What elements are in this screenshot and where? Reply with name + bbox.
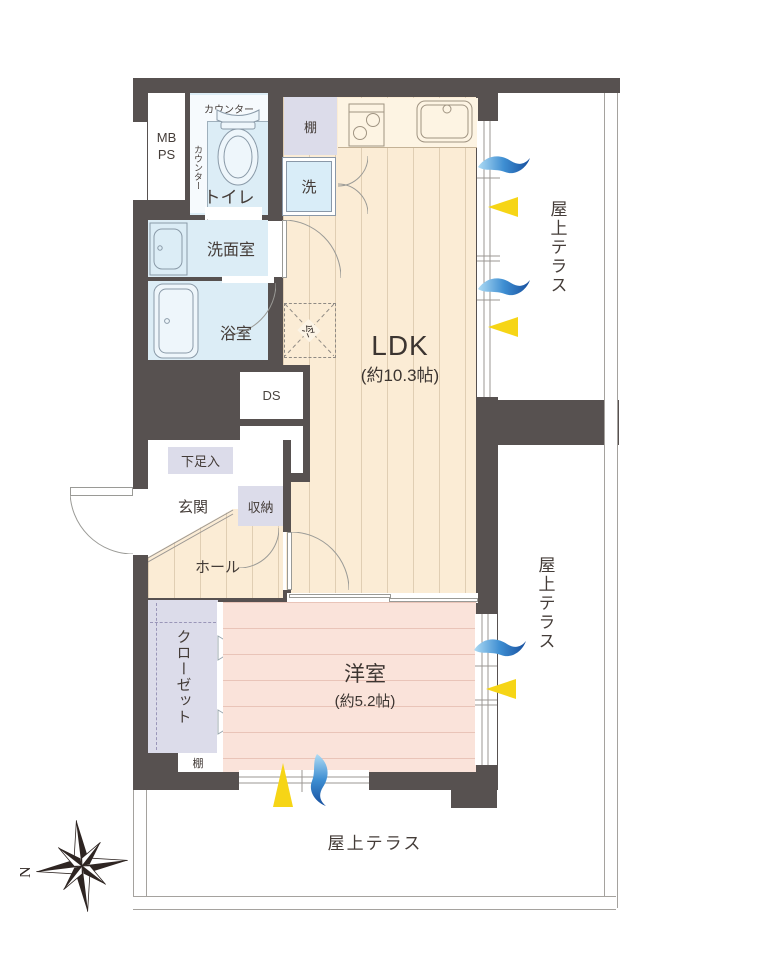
daylight-icon	[271, 762, 295, 808]
wind-icon	[478, 274, 530, 300]
front-door-opening	[131, 489, 148, 555]
hall-door-arc	[291, 532, 349, 590]
wall-bottom-block	[451, 790, 497, 808]
refrigerator-box: 冷	[284, 303, 336, 358]
sink-icon	[416, 100, 474, 144]
floor-plan: 屋上テラス 屋上テラス 屋上テラス MB PS カウンター カウンター トイレ …	[0, 0, 759, 960]
front-door-arc	[70, 491, 133, 554]
ds-1-label: DS	[262, 388, 280, 403]
ldk-size-label: (約10.3帖)	[340, 362, 460, 384]
toilet-icon	[210, 107, 266, 191]
compass-icon: N	[20, 812, 132, 924]
daylight-icon	[487, 195, 519, 219]
shelf-top-label: 棚	[304, 117, 317, 136]
shoe-cabinet-box: 下足入	[168, 447, 233, 474]
closet-label: クローゼット	[173, 629, 194, 725]
meter-box-opening	[133, 122, 147, 200]
washroom-door-gap	[268, 221, 283, 277]
daylight-icon	[485, 677, 517, 701]
terrace-right-label: 屋上テラス	[532, 548, 558, 658]
mb-ps-label: MB PS	[154, 130, 180, 163]
wind-icon	[478, 152, 530, 178]
washroom-door-arc	[283, 220, 341, 278]
wall-hall-ldk-upper	[283, 440, 291, 532]
wall-terrace-divider	[455, 400, 619, 445]
western-room-size-label: (約5.2帖)	[312, 690, 418, 710]
compass-north-label: N	[20, 866, 34, 878]
bathroom-door-gap	[222, 276, 274, 283]
laundry-inner: 洗	[286, 161, 332, 212]
toilet-label: トイレ	[190, 184, 268, 206]
wind-icon	[474, 635, 526, 661]
closet-dash-vertical	[156, 603, 157, 750]
refrigerator-label-wrap: 冷	[285, 304, 334, 356]
laundry-box: 洗	[282, 157, 336, 216]
bathroom-label: 浴室	[208, 322, 264, 342]
wind-icon	[306, 754, 332, 806]
closet-hanger-pipe	[150, 622, 216, 623]
bathtub-icon	[153, 283, 199, 359]
terrace-parapet-right	[604, 93, 618, 908]
stove-icon	[348, 103, 386, 147]
refrigerator-label: 冷	[298, 318, 321, 341]
window-bottom	[239, 770, 369, 792]
hall-label: ホール	[185, 556, 250, 576]
laundry-label: 洗	[301, 176, 316, 197]
shelf-top-box: 棚	[284, 97, 337, 155]
ldk-label: LDK	[345, 330, 455, 362]
storage-box: 収納	[238, 486, 283, 526]
closet-shelf-box: 棚	[178, 753, 218, 772]
terrace-parapet-bottom	[133, 896, 616, 910]
washroom-label: 洗面室	[195, 238, 267, 258]
pantry-door-arcs	[338, 156, 368, 214]
terrace-bottom-label: 屋上テラス	[320, 830, 430, 852]
washbasin-icon	[149, 222, 189, 277]
shoe-cabinet-label: 下足入	[181, 451, 220, 470]
entrance-label: 玄関	[158, 496, 228, 516]
closet-shelf-label: 棚	[193, 755, 204, 771]
ds-box-1: DS	[240, 372, 303, 419]
terrace-top-right-label: 屋上テラス	[544, 192, 570, 302]
western-room-label: 洋室	[320, 660, 410, 686]
sliding-door-panel-1	[289, 594, 391, 598]
daylight-icon	[487, 315, 519, 339]
mb-ps-box: MB PS	[148, 93, 185, 200]
storage-label: 収納	[247, 497, 273, 516]
terrace-parapet-left	[133, 790, 147, 896]
wall-top-extension	[498, 78, 620, 93]
